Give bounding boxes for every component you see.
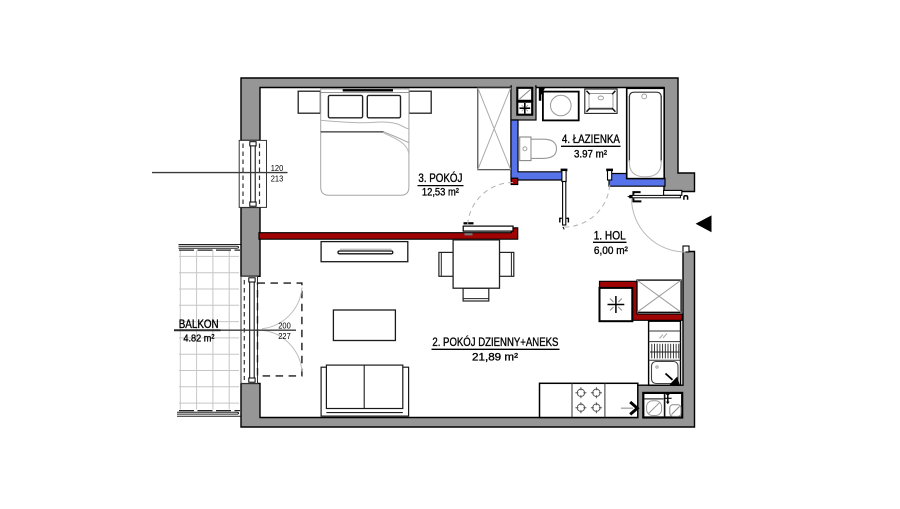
svg-text:3.97 m²: 3.97 m² [574, 149, 607, 161]
svg-text:3. POKÓJ: 3. POKÓJ [418, 170, 462, 185]
svg-text:4.82 m²: 4.82 m² [183, 333, 214, 345]
svg-text:120: 120 [271, 163, 284, 173]
svg-text:12,53 m²: 12,53 m² [422, 187, 459, 199]
svg-text:2. POKÓJ DZIENNY+ANEKS: 2. POKÓJ DZIENNY+ANEKS [432, 334, 558, 349]
svg-text:200: 200 [278, 321, 291, 331]
svg-text:1. HOL: 1. HOL [594, 228, 626, 242]
svg-text:227: 227 [278, 331, 291, 341]
svg-text:BALKON: BALKON [179, 319, 219, 331]
svg-text:213: 213 [271, 174, 284, 184]
svg-text:6,00 m²: 6,00 m² [594, 245, 628, 257]
svg-text:4. ŁAZIENKA: 4. ŁAZIENKA [562, 132, 621, 146]
svg-text:21,89 m²: 21,89 m² [472, 352, 518, 364]
